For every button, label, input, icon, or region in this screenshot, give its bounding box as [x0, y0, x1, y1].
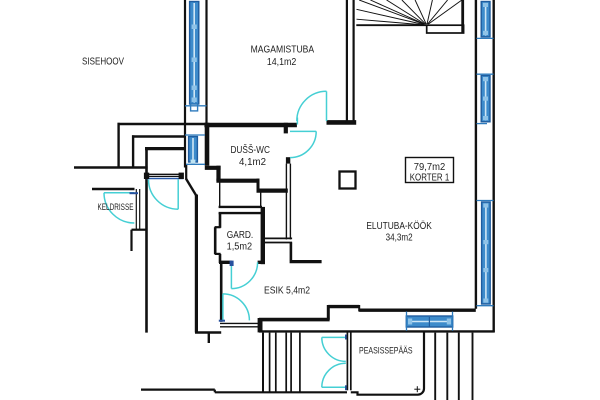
svg-text:14,1m2: 14,1m2	[267, 57, 297, 68]
svg-text:ELUTUBA-KÖÖK: ELUTUBA-KÖÖK	[366, 220, 432, 232]
svg-text:KELDRISSE: KELDRISSE	[98, 202, 134, 212]
svg-text:MAGAMISTUBA: MAGAMISTUBA	[251, 45, 315, 56]
svg-text:DUŠŠ-WC: DUŠŠ-WC	[230, 143, 270, 156]
svg-text:KORTER 1: KORTER 1	[410, 172, 450, 183]
svg-text:34,3m2: 34,3m2	[386, 233, 413, 244]
svg-text:PEASISSEPÄÄS: PEASISSEPÄÄS	[359, 346, 413, 357]
svg-text:4,1m2: 4,1m2	[239, 157, 266, 168]
svg-text:GARD.: GARD.	[227, 230, 254, 241]
svg-text:79,7m2: 79,7m2	[414, 162, 446, 173]
svg-text:1,5m2: 1,5m2	[227, 242, 253, 253]
svg-text:ESIK 5,4m2: ESIK 5,4m2	[264, 285, 310, 296]
svg-text:SISEHOOV: SISEHOOV	[82, 57, 124, 68]
